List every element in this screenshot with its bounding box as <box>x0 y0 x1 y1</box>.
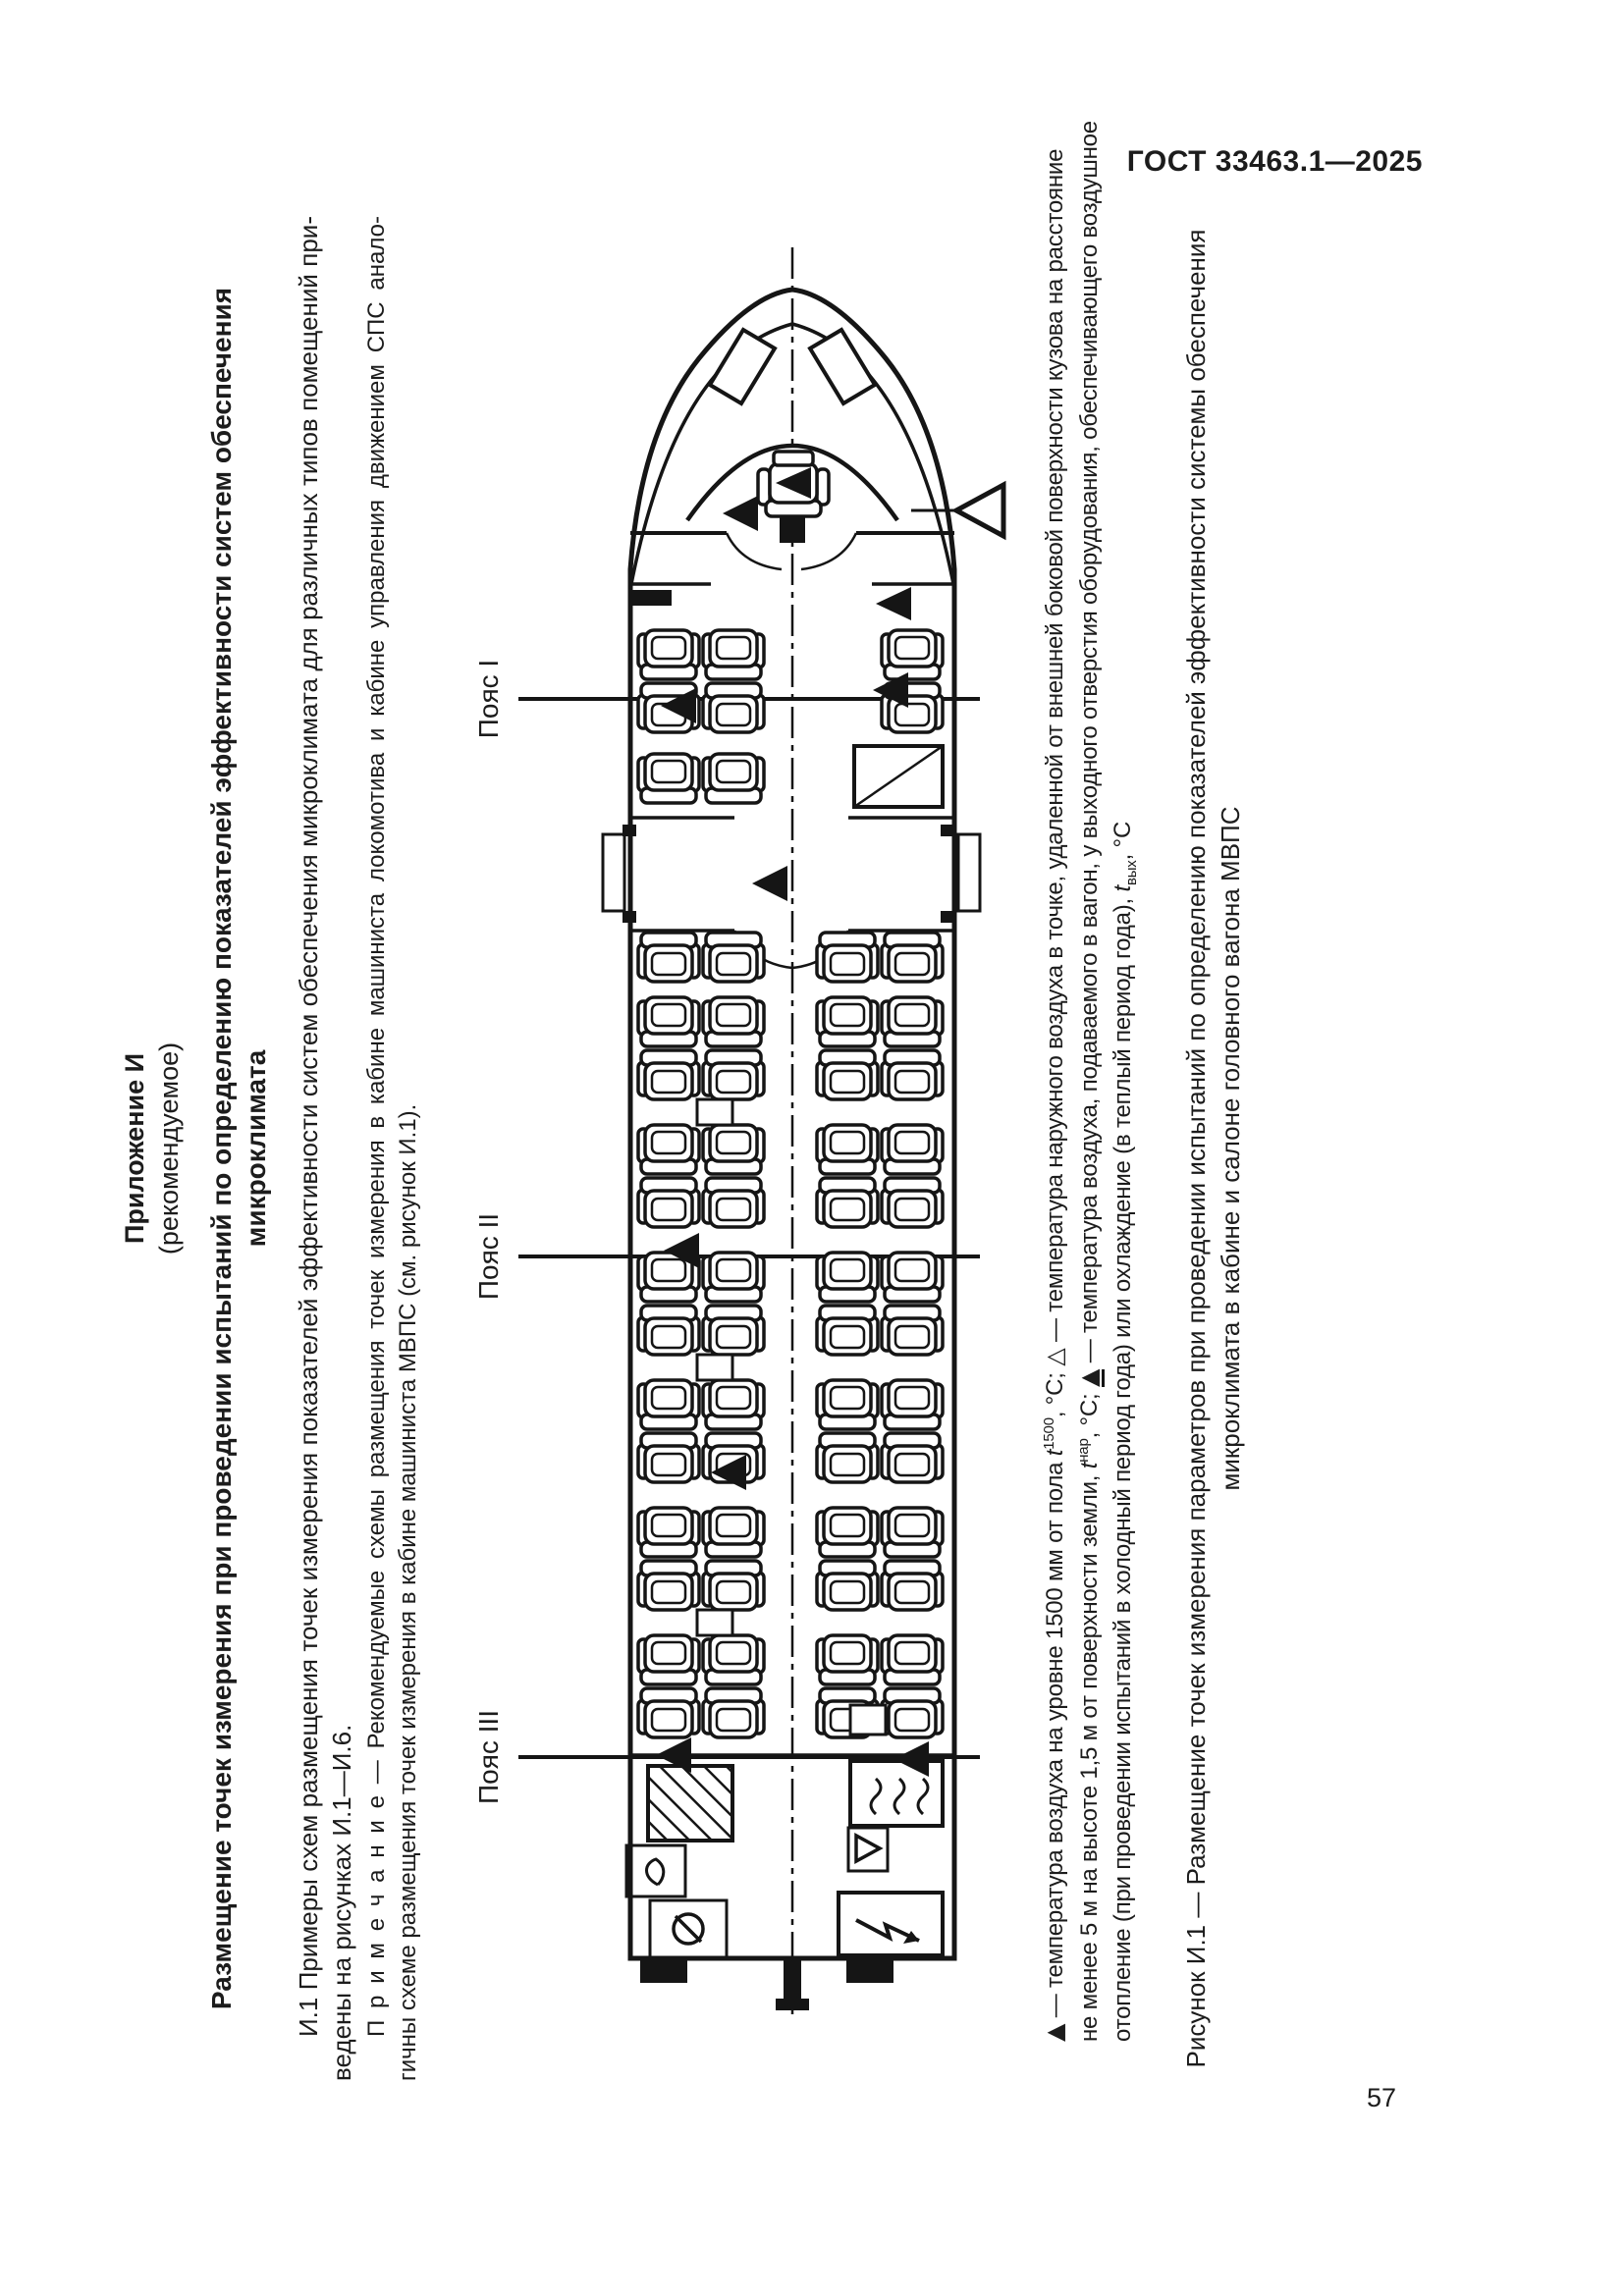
legend-line-1: ▲ — температура воздуха на уровне 1500 м… <box>1041 177 1069 2081</box>
outdoor-temp-icon <box>911 485 1003 536</box>
rear-buffer-bottom <box>846 1959 893 1983</box>
windshield-left <box>710 330 775 403</box>
coupler <box>784 1959 801 2001</box>
saloon2-seats <box>638 933 943 1737</box>
document-page: ГОСТ 33463.1—2025 Приложение И (рекоменд… <box>0 0 1624 2296</box>
hatched-module <box>648 1766 732 1841</box>
cab-console <box>780 517 805 543</box>
legend-line-3: отопление (при проведении испытаний в хо… <box>1110 177 1140 2081</box>
measurement-point-icon <box>876 587 911 620</box>
measurement-point-icon <box>723 496 758 531</box>
supply-air-triangle-icon: ▲ <box>1077 1369 1105 1387</box>
page-number: 57 <box>1367 2083 1396 2113</box>
legend-line-2: не менее 5 м на высоте 1,5 м от поверхно… <box>1075 177 1105 2081</box>
measurement-point-icon <box>752 866 787 901</box>
rotated-content: Приложение И (рекомендуемое) Размещение … <box>108 118 1424 2238</box>
wardrobe <box>854 746 943 807</box>
open-triangle-icon: △ <box>1043 1348 1066 1365</box>
equipment-area <box>626 1761 943 1957</box>
belt-label-1: Пояс I <box>473 620 505 777</box>
belt-label-3: Пояс III <box>473 1679 505 1836</box>
figure-caption-line-1: Рисунок И.1 — Размещение точек измерения… <box>1182 216 1212 2081</box>
figure-caption-line-2: микроклимата в кабине и салоне головного… <box>1217 216 1246 2081</box>
hook-box <box>626 1845 685 1896</box>
windshield-right <box>810 330 875 403</box>
belt-label-2: Пояс II <box>473 1178 505 1335</box>
measurement-point-icon <box>893 1741 929 1777</box>
rear-buffer-top <box>640 1959 687 1983</box>
door-pocket-top <box>603 834 624 911</box>
electric-box <box>839 1893 943 1955</box>
filled-triangle-icon: ▲ <box>1043 2024 1066 2042</box>
door-pocket-bottom <box>958 834 980 911</box>
